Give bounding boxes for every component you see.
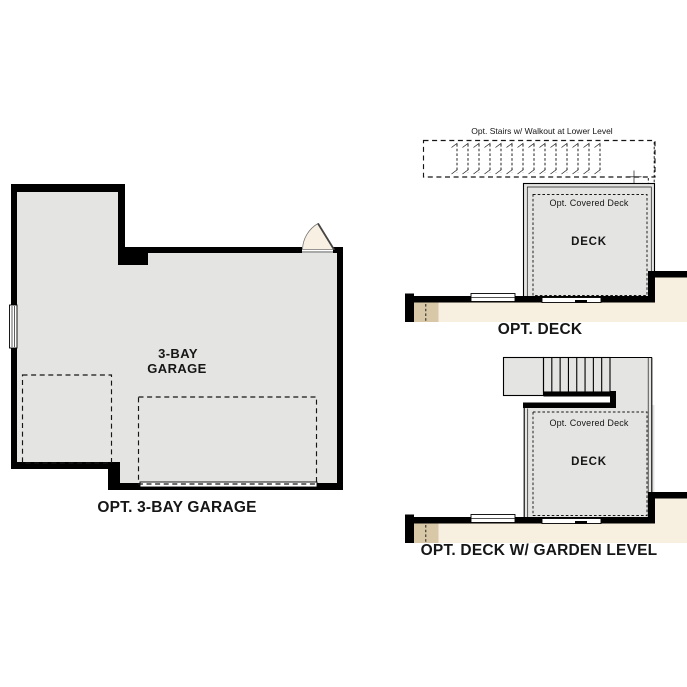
garden-deck-top-wall bbox=[523, 403, 616, 409]
garage-wall-top-main bbox=[118, 247, 302, 253]
garage-room-label-line2: GARAGE bbox=[147, 361, 206, 376]
garage-wall-right bbox=[337, 247, 343, 490]
floorplan-page: 3-BAY GARAGE OPT. 3-BAY GARAGE Opt. Stai… bbox=[0, 0, 687, 687]
deck-plan: Opt. Stairs w/ Walkout at Lower Level Op… bbox=[405, 126, 687, 338]
stair-tread bbox=[496, 170, 502, 175]
garage-wall-top-left bbox=[11, 184, 125, 192]
stair-tread bbox=[474, 170, 480, 175]
covered-deck-label: Opt. Covered Deck bbox=[549, 418, 628, 428]
covered-deck-label: Opt. Covered Deck bbox=[549, 198, 628, 208]
stair-tread bbox=[573, 170, 579, 175]
stair-tread bbox=[595, 170, 601, 175]
stair-treads-dashed bbox=[452, 143, 601, 174]
deck-caption: OPT. DECK bbox=[498, 321, 583, 338]
stair-tread bbox=[507, 170, 513, 175]
garage-window bbox=[10, 305, 18, 348]
stair-tread bbox=[452, 170, 458, 175]
stair-tread bbox=[540, 170, 546, 175]
stair-tread bbox=[562, 170, 568, 175]
deck-room-label: DECK bbox=[571, 236, 607, 248]
garden-deck-caption: OPT. DECK W/ GARDEN LEVEL bbox=[421, 542, 658, 559]
door-swing bbox=[303, 224, 335, 250]
garage-room-label-line1: 3-BAY bbox=[158, 346, 198, 361]
garden-deck-plan: Opt. Covered Deck DECK OPT. DECK W/ GARD… bbox=[405, 358, 687, 560]
stairs-deck-connector-floor bbox=[610, 358, 652, 406]
garage-plan: 3-BAY GARAGE OPT. 3-BAY GARAGE bbox=[10, 184, 344, 516]
stair-tread bbox=[551, 170, 557, 175]
optional-stairs-outline bbox=[424, 141, 656, 178]
floorplan-canvas: 3-BAY GARAGE OPT. 3-BAY GARAGE Opt. Stai… bbox=[0, 0, 687, 687]
garage-wall-bay-divider bbox=[118, 192, 125, 252]
garden-deck-wall-return bbox=[610, 391, 616, 406]
stair-bottom-edge bbox=[544, 392, 611, 397]
garage-caption: OPT. 3-BAY GARAGE bbox=[97, 499, 256, 516]
stair-tread bbox=[529, 170, 535, 175]
stairs-floor bbox=[504, 358, 611, 396]
stair-tread bbox=[518, 170, 524, 175]
stair-tread bbox=[463, 170, 469, 175]
stair-tread bbox=[485, 170, 491, 175]
optional-stairs-label: Opt. Stairs w/ Walkout at Lower Level bbox=[471, 126, 613, 136]
garage-floor bbox=[17, 192, 337, 483]
stair-tread bbox=[584, 170, 590, 175]
deck-room-label: DECK bbox=[571, 456, 607, 468]
